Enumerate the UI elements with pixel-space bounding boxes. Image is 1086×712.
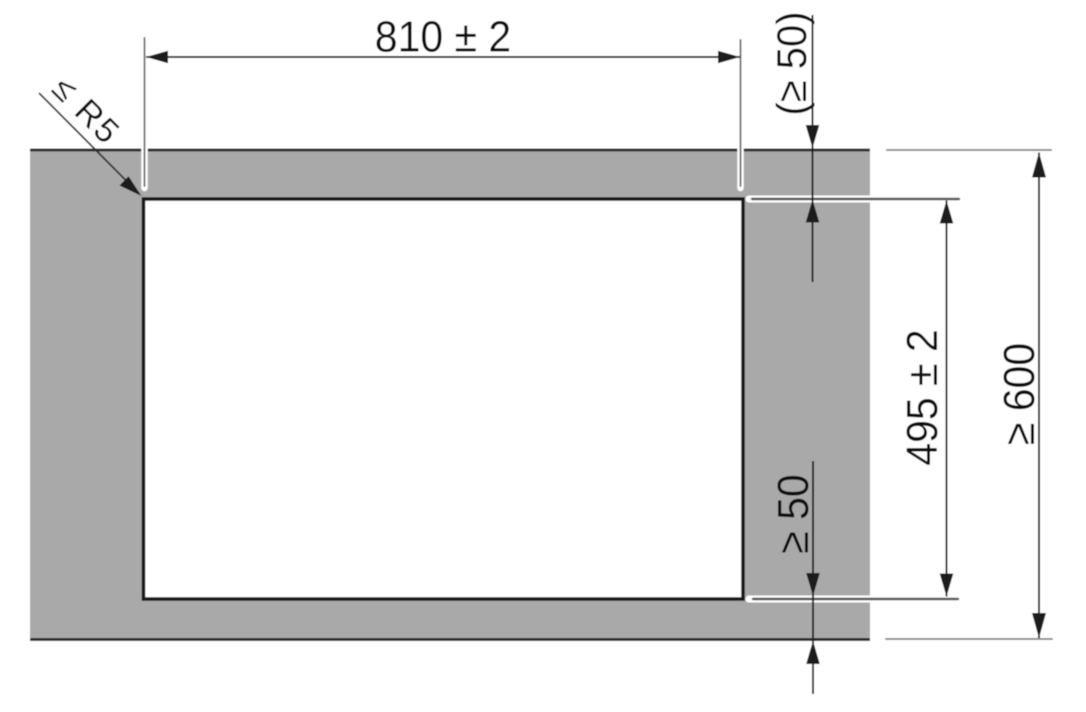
svg-text:495 ± 2: 495 ± 2: [898, 329, 946, 465]
svg-text:≥ 50: ≥ 50: [769, 474, 817, 553]
svg-text:810 ± 2: 810 ± 2: [375, 12, 511, 60]
svg-text:≥ 600: ≥ 600: [995, 343, 1043, 445]
svg-text:(≥ 50): (≥ 50): [768, 11, 815, 115]
